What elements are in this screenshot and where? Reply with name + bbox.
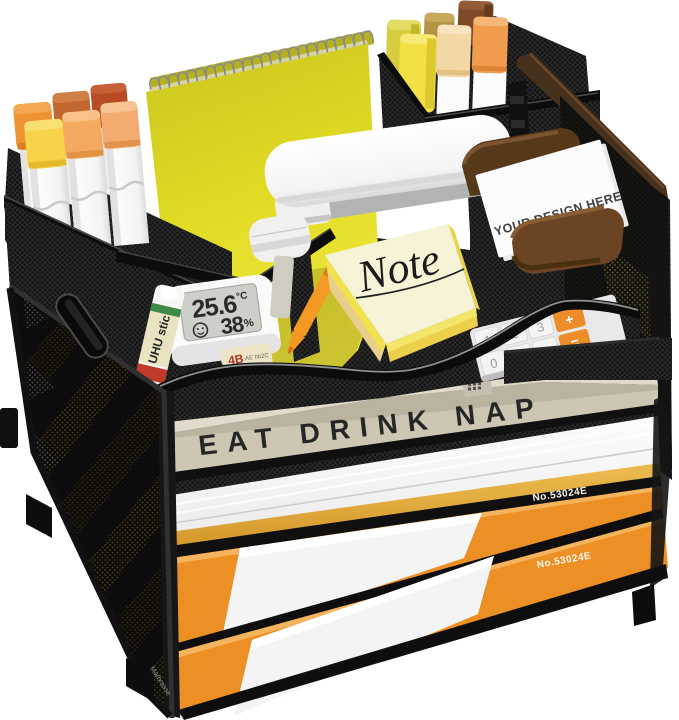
svg-text:°C: °C (235, 290, 248, 302)
svg-text:%: % (243, 317, 255, 330)
svg-text:38: 38 (219, 311, 245, 339)
